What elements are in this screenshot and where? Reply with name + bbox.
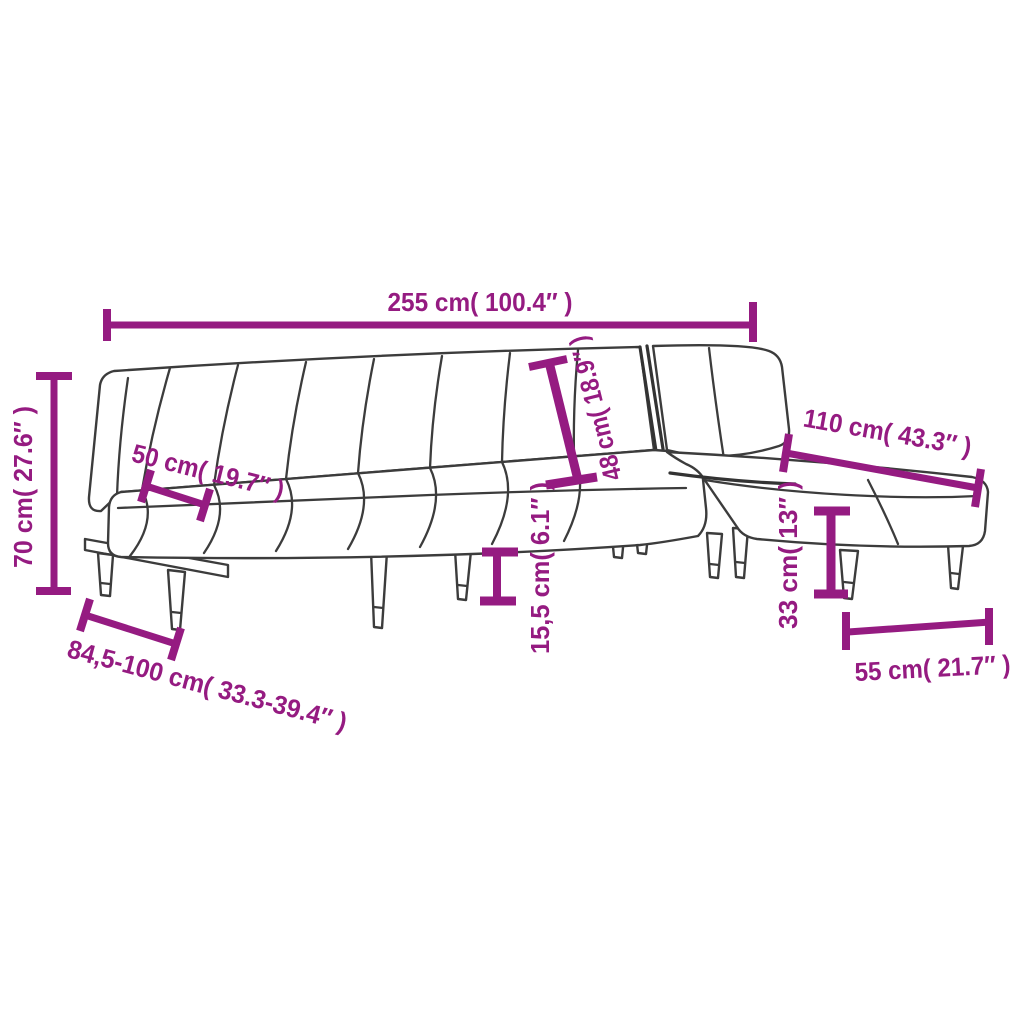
dimension-label-ground-clearance: 15,5 cm( 6.1″ ) bbox=[525, 482, 555, 654]
dimension-chaise-width: 55 cm( 21.7″ ) bbox=[846, 608, 1011, 687]
dimension-label-depth-range: 84,5-100 cm( 33.3-39.4″ ) bbox=[64, 634, 350, 738]
backrest-right-section bbox=[653, 345, 789, 459]
dimension-label-chaise-width: 55 cm( 21.7″ ) bbox=[854, 649, 1011, 687]
dimension-depth-range: 84,5-100 cm( 33.3-39.4″ ) bbox=[64, 599, 350, 737]
dimension-back-height: 70 cm( 27.6″ ) bbox=[8, 376, 72, 591]
dimension-label-chaise-length: 110 cm( 43.3″ ) bbox=[801, 403, 974, 462]
dimension-label-seat-height: 33 cm( 13″ ) bbox=[773, 481, 803, 629]
dimension-label-back-height: 70 cm( 27.6″ ) bbox=[8, 406, 38, 568]
diagram-canvas: 255 cm( 100.4″ ) 70 cm( 27.6″ ) 50 cm( 1… bbox=[0, 0, 1024, 1024]
dimension-diagram: 255 cm( 100.4″ ) 70 cm( 27.6″ ) 50 cm( 1… bbox=[0, 0, 1024, 1024]
dimension-total-length: 255 cm( 100.4″ ) bbox=[107, 287, 753, 342]
dimension-label-total-length: 255 cm( 100.4″ ) bbox=[388, 287, 573, 317]
